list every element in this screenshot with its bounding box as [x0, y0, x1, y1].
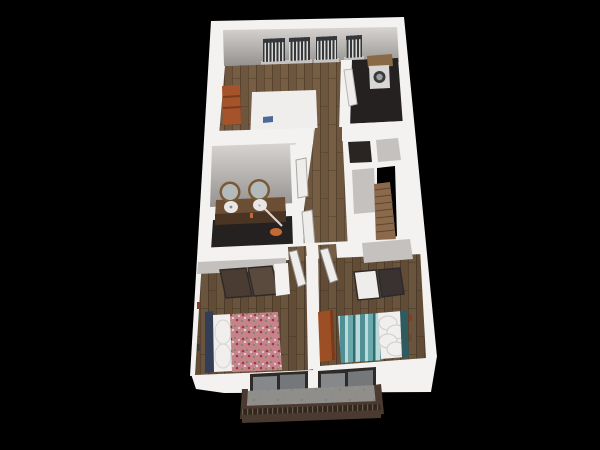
pillow [215, 320, 231, 344]
soap-dispenser [250, 213, 253, 218]
closet-door-panel [354, 270, 380, 300]
bed-teal-duvet [338, 313, 383, 363]
towel [270, 228, 282, 236]
wall-art [409, 314, 412, 321]
mirror-glass [222, 184, 238, 200]
washer-door-glass [376, 74, 382, 80]
dresser-right [318, 310, 335, 362]
living-south-wall [211, 128, 313, 147]
laundry-window [344, 35, 364, 62]
closet-door-panel [378, 268, 404, 297]
mirror-glass [251, 182, 268, 199]
living-room-windows [261, 36, 339, 66]
bed-right [338, 310, 409, 363]
render-canvas [0, 0, 600, 450]
closet-side-wall [274, 263, 290, 296]
pantry-closet-floor [348, 141, 372, 163]
bookshelf [222, 85, 241, 125]
bed-left [205, 311, 282, 373]
bookshelf-body [222, 85, 241, 125]
wall-art [409, 334, 412, 341]
wall-art [197, 344, 200, 351]
bedroom-right-closet-interior [362, 239, 413, 263]
bed-floral-duvet [230, 312, 282, 372]
floorplan-render [0, 0, 600, 450]
laptop [263, 116, 273, 123]
closet-floor [352, 168, 376, 214]
closet-door-panel [220, 268, 252, 298]
pillow [215, 344, 231, 368]
wall-art [197, 302, 200, 309]
closet-floor [376, 138, 401, 162]
hall-door [296, 158, 308, 198]
bedrooms-divider-wall [306, 255, 320, 370]
sliding-door-glass [348, 370, 373, 388]
sliding-door-glass [280, 374, 305, 391]
washer [369, 65, 390, 89]
sink-drain [230, 206, 233, 209]
